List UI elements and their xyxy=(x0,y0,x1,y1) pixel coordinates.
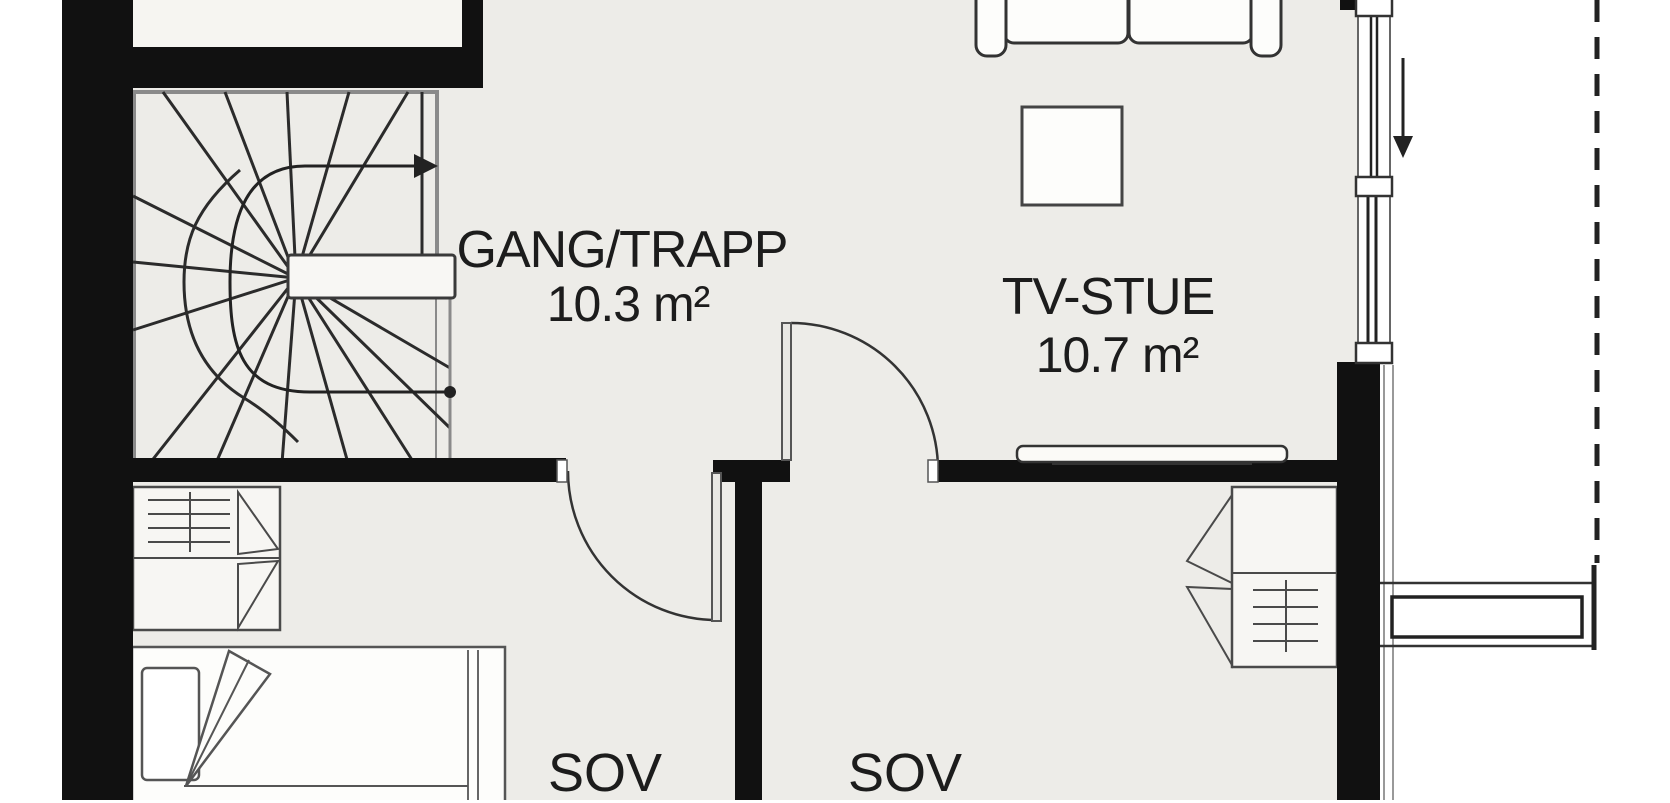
room-area-gang-trapp: 10.3 m² xyxy=(547,279,710,329)
sofa-cushion xyxy=(1004,0,1128,43)
door-jamb xyxy=(928,460,938,482)
exterior-wall-left xyxy=(62,0,133,800)
room-top-left xyxy=(133,0,462,47)
wardrobe-left-bedroom xyxy=(133,487,280,630)
window-right-lower xyxy=(1368,196,1376,343)
tv-bench xyxy=(1017,446,1287,464)
room-label-tv-stue: TV-STUE xyxy=(1002,271,1215,323)
coffee-table xyxy=(1022,107,1122,205)
sofa-armrest xyxy=(976,0,1006,56)
room-area-tv-stue: 10.7 m² xyxy=(1036,330,1199,380)
room-label-sov-right: SOV xyxy=(848,746,962,800)
wall-below-stairs xyxy=(120,458,566,482)
room-label-gang-trapp: GANG/TRAPP xyxy=(457,224,788,276)
floor-plan-canvas xyxy=(0,0,1670,800)
door-leaf-sov-left xyxy=(712,473,721,621)
room-label-sov-left: SOV xyxy=(548,746,662,800)
bed-pillow xyxy=(142,668,199,780)
staircase xyxy=(133,92,456,463)
wall-between-bedrooms xyxy=(735,478,762,800)
stair-walkline-start-dot xyxy=(444,386,456,398)
windows-right xyxy=(1356,0,1392,363)
window-right-upper xyxy=(1371,16,1377,177)
sofa-cushion xyxy=(1129,0,1253,43)
exterior-wall-right-lower xyxy=(1337,362,1380,800)
door-jamb xyxy=(557,460,567,482)
wall-top-left-room-side xyxy=(462,0,483,88)
door-leaf-tv-stue xyxy=(782,323,791,460)
single-bed xyxy=(132,647,505,800)
sofa-armrest xyxy=(1251,0,1281,56)
entry-step xyxy=(1380,565,1594,650)
entry-direction-arrow-icon xyxy=(1393,58,1413,158)
wall-top-left-room xyxy=(62,47,483,88)
floor-plan: GANG/TRAPP 10.3 m² TV-STUE 10.7 m² SOV S… xyxy=(0,0,1670,800)
